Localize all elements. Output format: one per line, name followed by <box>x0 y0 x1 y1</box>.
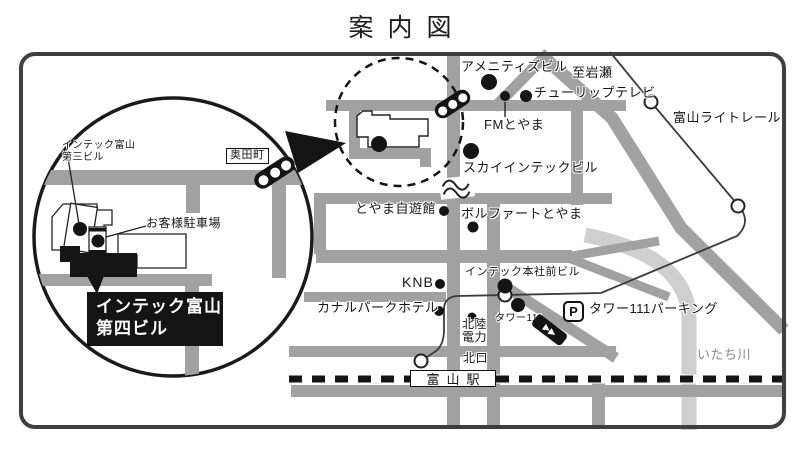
parking-dot <box>92 235 105 248</box>
intec-hq-dot <box>498 279 513 294</box>
parking-p-icon: P <box>563 301 584 322</box>
amenities-dot <box>481 74 497 90</box>
light-rail-label: 富山ライトレール <box>673 111 781 126</box>
knb-label: KNB <box>402 274 434 290</box>
tower111-parking-label: タワー111パーキング <box>589 302 718 317</box>
page-title: 案内図 <box>0 8 800 44</box>
amenities-bldg-label: アメニティズビル <box>461 60 568 75</box>
sky-intec-dot <box>463 143 479 159</box>
fm-toyama-label: FMとやま <box>484 118 544 133</box>
building3-dot <box>73 222 87 236</box>
intec-hq-label: インテック本社前ビル <box>465 266 580 279</box>
station-marker <box>415 355 428 368</box>
tulip-tv-label: チューリップテレビ <box>534 86 656 101</box>
okudamachi-label: 奥田町 <box>226 148 269 164</box>
to-iwase-label: 至岩瀬 <box>572 66 613 81</box>
tower111-dot <box>511 298 525 312</box>
building4-mini-outline <box>357 111 428 147</box>
tulip-tv-dot <box>520 90 532 102</box>
fm-toyama-dot <box>500 91 510 101</box>
canal-park-hotel-label: カナルパークホテル <box>317 301 439 316</box>
volfahrt-label: ボルファートとやま <box>461 207 583 222</box>
building4-label-box: インテック富山 第四ビル <box>87 292 223 346</box>
map-graphics <box>0 0 800 451</box>
knb-dot <box>435 279 445 289</box>
jiyukan-label: とやま自遊館 <box>355 202 436 217</box>
building4-mini-dot <box>371 136 387 152</box>
volfahrt-dot <box>468 222 479 233</box>
sky-intec-label: スカイインテックビル <box>463 161 598 176</box>
itachi-river-label: いたち川 <box>697 348 751 363</box>
guide-map: 案内図 インテック富山 第三ビル 奥田町 お客様駐車場 インテック富山 第四ビル… <box>0 0 800 451</box>
customer-parking-label: お客様駐車場 <box>146 217 221 231</box>
toyama-station-box: 富山駅 <box>410 370 496 387</box>
station-marker <box>732 200 745 213</box>
north-exit-label: 北口 <box>463 352 488 366</box>
hokuriku-electric-label: 北陸 電力 <box>462 318 487 343</box>
road-break-squiggle <box>439 175 475 200</box>
jiyukan-dot <box>439 206 449 216</box>
building3-label: インテック富山 第三ビル <box>62 140 136 163</box>
